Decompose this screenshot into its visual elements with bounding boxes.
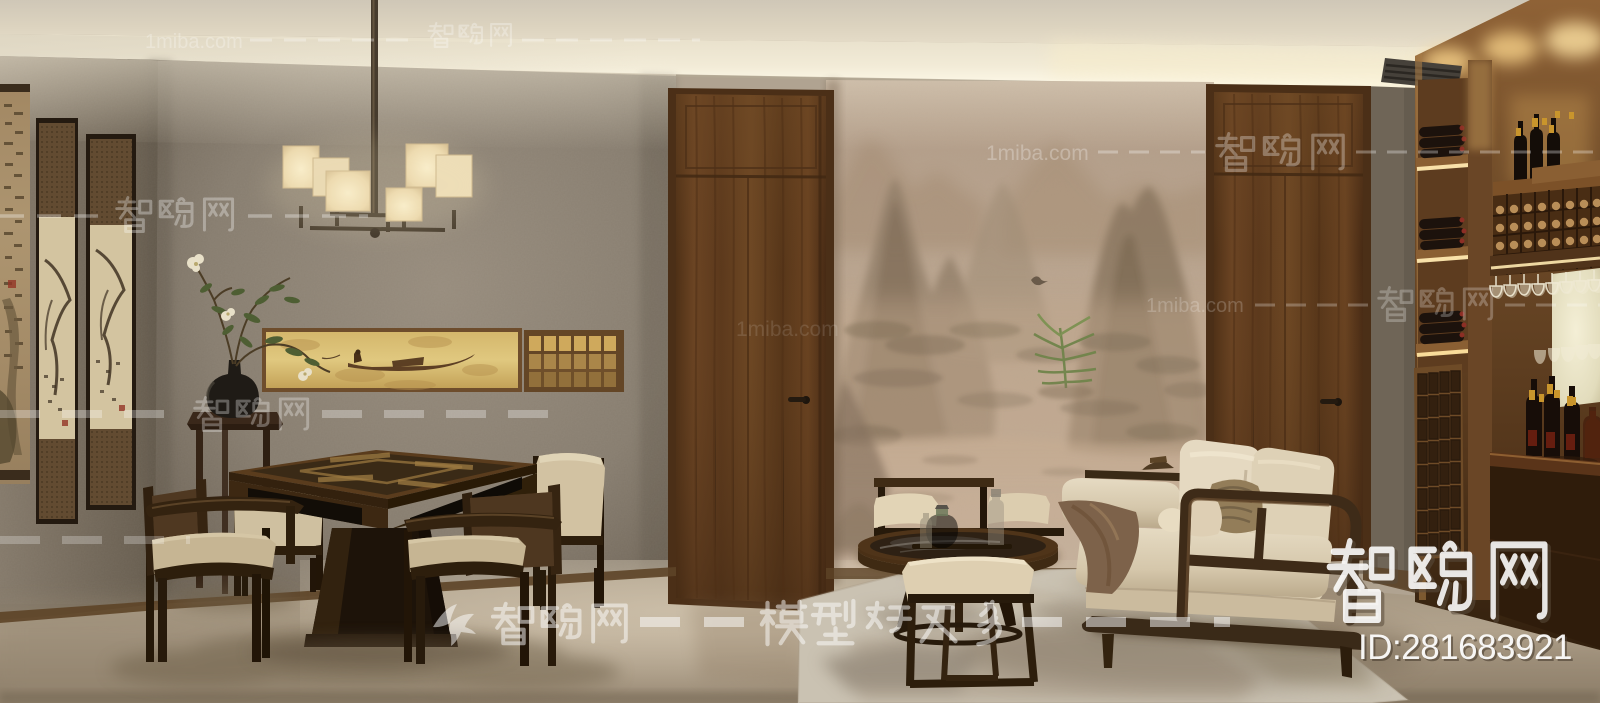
svg-text:1miba.com: 1miba.com: [1146, 295, 1244, 317]
svg-text:ID:281683921: ID:281683921: [1358, 628, 1572, 667]
svg-text:1miba.com: 1miba.com: [145, 31, 243, 53]
svg-text:1miba.com: 1miba.com: [736, 318, 839, 341]
svg-text:1miba.com: 1miba.com: [986, 142, 1089, 165]
